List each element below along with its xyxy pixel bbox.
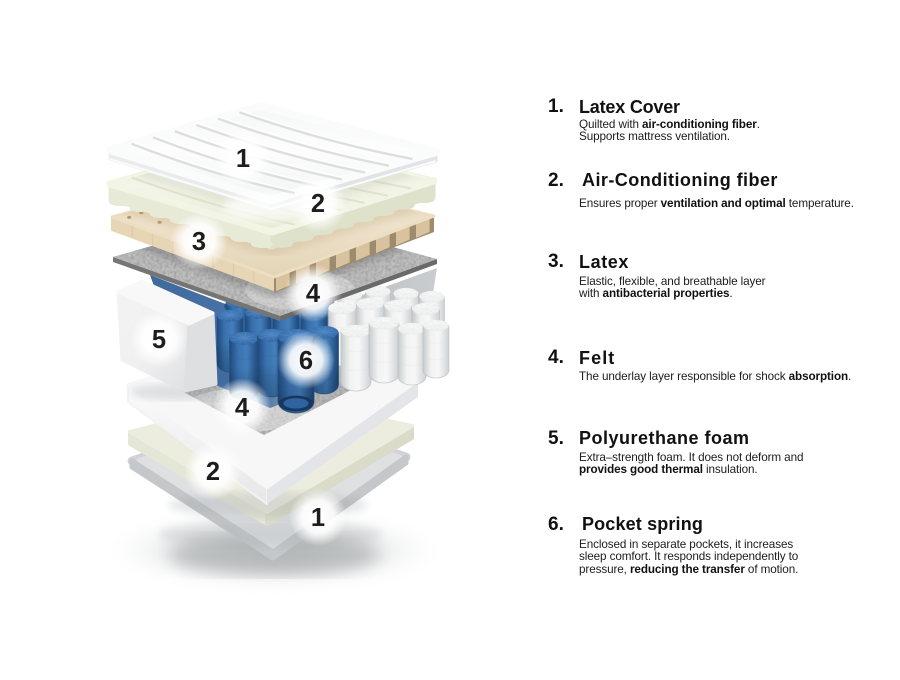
svg-text:4: 4 [306,280,321,308]
svg-text:2: 2 [206,458,220,486]
svg-text:1: 1 [311,504,325,532]
svg-text:6: 6 [299,347,313,375]
svg-text:5: 5 [152,326,166,354]
svg-text:1: 1 [236,145,250,173]
svg-text:4: 4 [235,394,250,422]
svg-text:3: 3 [192,228,206,256]
svg-text:2: 2 [311,190,325,218]
